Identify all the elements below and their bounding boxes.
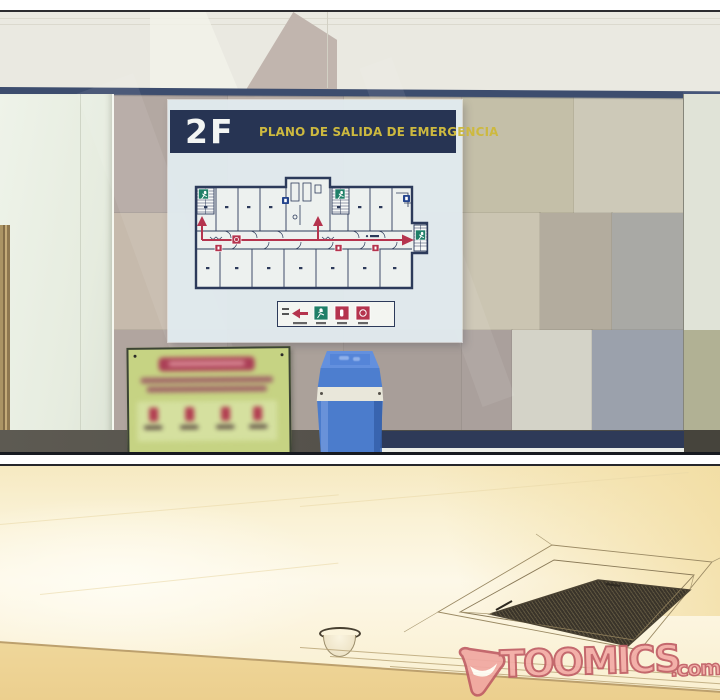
wall-tile (462, 94, 574, 213)
lid-highlight (353, 357, 360, 361)
floor-corner (684, 430, 720, 452)
wall-tile (592, 330, 683, 432)
wall-tile (574, 94, 683, 213)
trash-can-lid-skirt (315, 368, 385, 387)
wall-tile (540, 213, 612, 330)
exit-man-icon (314, 306, 328, 320)
trash-can (315, 351, 385, 452)
trash-can-swing-flap (330, 354, 369, 365)
toomics-watermark: TOOMICS .com (457, 631, 720, 700)
ceiling-line (0, 18, 720, 19)
blurred-caption (216, 425, 234, 429)
toomics-brand-text: TOOMICS (499, 637, 680, 686)
floor-label: 2F (185, 115, 235, 148)
door-frame (0, 225, 10, 452)
wall-tile (512, 330, 592, 432)
green-notice-sign (126, 346, 291, 452)
lid-highlight (339, 356, 349, 360)
screw (134, 355, 137, 358)
ceiling-line (0, 24, 720, 25)
floor-plan (190, 173, 430, 298)
screw (281, 353, 284, 356)
extinguisher-icon (335, 306, 349, 320)
hydrant-icon (356, 306, 370, 320)
emergency-plan-board: 2F PLANO DE SALIDA DE EMERGENCIA (168, 100, 462, 342)
right-wall-lower (684, 330, 720, 432)
wall-seam (327, 12, 328, 88)
collar-latch (320, 392, 323, 395)
blurred-icon (149, 408, 158, 422)
baseboard (378, 431, 690, 448)
toomics-com-text: .com (670, 656, 720, 682)
panel1-bottom-border (0, 452, 720, 455)
pillar-edge (80, 94, 81, 452)
blurred-caption (180, 425, 198, 429)
body-highlight (321, 401, 328, 452)
extinguisher-icon (232, 235, 241, 244)
wall-corner-line (683, 94, 684, 452)
blurred-sign-title (159, 357, 255, 372)
blurred-caption (144, 425, 162, 429)
blurred-sign-content (128, 348, 289, 452)
blurred-icon (221, 407, 230, 421)
blurred-text-line (141, 376, 273, 383)
plan-title: PLANO DE SALIDA DE EMERGENCIA (259, 124, 499, 139)
dome-cap (323, 635, 356, 657)
blurred-icon (185, 407, 194, 421)
blurred-text-line (147, 385, 267, 392)
plan-legend (277, 301, 395, 327)
panel2-ceiling: TOOMICS .com (0, 466, 720, 700)
body-shade (374, 401, 382, 452)
blurred-caption (249, 424, 267, 428)
panel1-hallway: 2F PLANO DE SALIDA DE EMERGENCIA (0, 12, 720, 452)
trash-can-collar (315, 387, 385, 401)
right-wall (684, 94, 720, 330)
blurred-icon (253, 406, 262, 420)
wall-tile (612, 213, 683, 330)
comic-page: 2F PLANO DE SALIDA DE EMERGENCIA (0, 0, 720, 700)
plan-header: 2F PLANO DE SALIDA DE EMERGENCIA (170, 110, 456, 153)
collar-latch (378, 392, 381, 395)
